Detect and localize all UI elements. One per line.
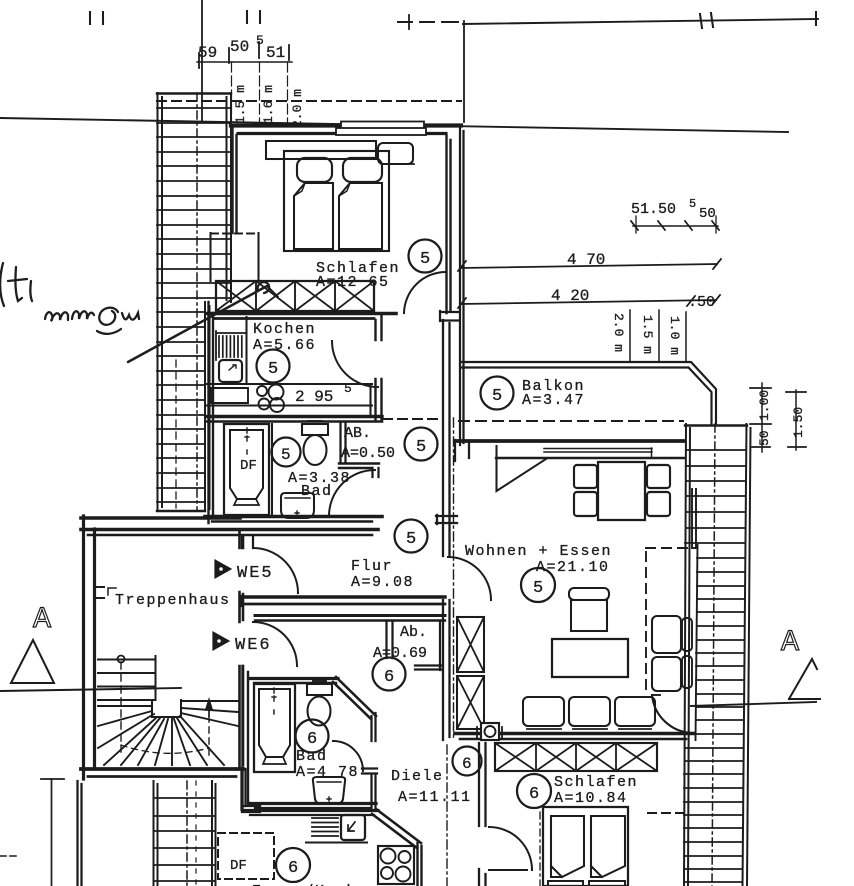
svg-text:A=0.50: A=0.50 bbox=[341, 445, 395, 462]
svg-text:2.0 m: 2.0 m bbox=[611, 313, 626, 352]
svg-text:AB.: AB. bbox=[344, 425, 371, 442]
svg-text:51: 51 bbox=[266, 44, 285, 62]
svg-text:A=11.11: A=11.11 bbox=[398, 789, 472, 806]
svg-text:6: 6 bbox=[288, 859, 298, 878]
svg-text:A=3.47: A=3.47 bbox=[522, 392, 585, 409]
svg-text:59: 59 bbox=[198, 44, 217, 62]
svg-text:6: 6 bbox=[384, 668, 394, 687]
svg-text:A=4 78: A=4 78 bbox=[296, 764, 359, 781]
svg-text:2 95: 2 95 bbox=[295, 388, 333, 406]
svg-text:A=9.08: A=9.08 bbox=[351, 574, 414, 591]
svg-text:5: 5 bbox=[406, 530, 416, 549]
svg-text:Diele: Diele bbox=[391, 768, 444, 785]
svg-text:Schlafen: Schlafen bbox=[554, 774, 638, 791]
svg-text:5: 5 bbox=[256, 33, 264, 48]
svg-text:WE5: WE5 bbox=[237, 564, 274, 583]
svg-text:6: 6 bbox=[529, 785, 539, 804]
svg-text:WE6: WE6 bbox=[235, 636, 272, 655]
svg-text:1.5 m: 1.5 m bbox=[640, 315, 655, 354]
svg-text:6: 6 bbox=[307, 730, 317, 749]
svg-text:1.0 m: 1.0 m bbox=[667, 316, 682, 355]
svg-text:A: A bbox=[33, 603, 51, 637]
svg-text:4 70: 4 70 bbox=[567, 251, 605, 269]
svg-text:DF: DF bbox=[230, 858, 247, 874]
svg-text:50: 50 bbox=[230, 38, 249, 56]
svg-text:5: 5 bbox=[492, 387, 502, 406]
svg-text:1.6 m: 1.6 m bbox=[261, 85, 276, 124]
svg-text:A: A bbox=[781, 626, 799, 660]
svg-text:6: 6 bbox=[462, 755, 472, 773]
svg-text:A=21.10: A=21.10 bbox=[536, 559, 610, 576]
svg-text:5: 5 bbox=[281, 446, 291, 464]
svg-text:1.50: 1.50 bbox=[791, 407, 806, 438]
svg-text:.50: .50 bbox=[688, 294, 715, 311]
svg-text:5: 5 bbox=[416, 438, 426, 457]
svg-text:5: 5 bbox=[344, 381, 352, 396]
svg-text:50: 50 bbox=[757, 430, 772, 446]
svg-text:A=5.66: A=5.66 bbox=[253, 337, 316, 354]
svg-text:5: 5 bbox=[268, 360, 278, 379]
svg-text:50: 50 bbox=[699, 206, 716, 222]
svg-text:Ab.: Ab. bbox=[400, 624, 427, 641]
svg-text:Treppenhaus: Treppenhaus bbox=[115, 592, 231, 609]
svg-text:5: 5 bbox=[420, 250, 430, 269]
svg-text:4 20: 4 20 bbox=[551, 287, 589, 305]
svg-text:51.50: 51.50 bbox=[631, 201, 676, 218]
svg-text:DF: DF bbox=[240, 458, 257, 474]
svg-text:A=12 65: A=12 65 bbox=[316, 274, 390, 291]
svg-text:Flur: Flur bbox=[351, 558, 393, 575]
svg-text:5: 5 bbox=[689, 197, 696, 211]
svg-text:A=10.84: A=10.84 bbox=[554, 790, 628, 807]
svg-text:1.00: 1.00 bbox=[757, 390, 772, 421]
svg-text:Bad: Bad bbox=[296, 748, 328, 765]
svg-text:Kochen: Kochen bbox=[253, 321, 316, 338]
svg-text:Wohnen + Essen: Wohnen + Essen bbox=[465, 543, 612, 560]
svg-text:5: 5 bbox=[533, 579, 543, 598]
svg-text:2.0 m: 2.0 m bbox=[290, 89, 305, 128]
svg-text:1.5 m: 1.5 m bbox=[233, 85, 248, 124]
